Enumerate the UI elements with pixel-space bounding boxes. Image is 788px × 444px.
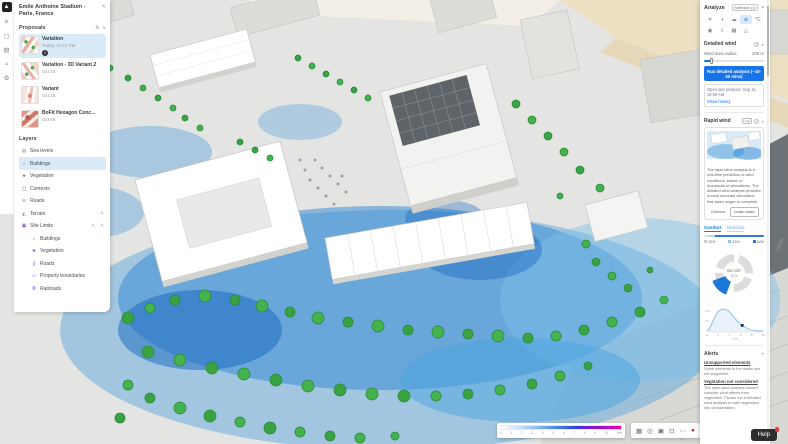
legend-chip: 64% <box>753 240 764 244</box>
x-axis-unit: m/s <box>733 336 738 340</box>
design-icon[interactable]: ▢ <box>3 33 9 40</box>
area-metrics-icon[interactable]: ▦ <box>728 26 740 35</box>
menu-icon[interactable]: ≡ <box>5 19 9 26</box>
proposal-name: Variation - 3D Variant 2 <box>42 62 96 68</box>
learn-more-button[interactable]: Learn more <box>730 207 758 217</box>
layer-label: Terrain <box>30 211 95 217</box>
roads-icon: ≋ <box>21 198 27 204</box>
grid-icon[interactable]: ▦ <box>636 427 642 435</box>
proposal-date: Oct 26 <box>42 117 95 122</box>
alert-body: The rapid wind analysis doesn't consider… <box>704 385 764 410</box>
layer-label: Roads <box>30 198 104 204</box>
terrain-analysis-icon[interactable]: △ <box>740 26 752 35</box>
tick: 6 <box>563 431 565 435</box>
edit-icon[interactable]: ✎ <box>100 223 104 229</box>
tick: 3 <box>531 431 533 435</box>
tick: 2 <box>521 431 523 435</box>
contexts-icon: ◫ <box>21 186 27 192</box>
layer-item-site-limits[interactable]: ▣ Site Limits ✎ ✎ <box>19 220 106 233</box>
property-boundaries-icon: ▱ <box>31 273 37 279</box>
scrollbar-thumb[interactable] <box>767 6 769 76</box>
noise-icon[interactable]: ◉ <box>704 26 716 35</box>
chevron-up-icon[interactable]: ∧ <box>761 351 764 356</box>
proposal-date: Oct 26 <box>42 93 59 98</box>
sun-hours-icon[interactable]: ☀ <box>704 15 716 24</box>
wind-preview-image <box>707 130 761 160</box>
show-history-link[interactable]: Show history <box>707 99 761 104</box>
wind-speed-legend: 0 1 2 3 4 5 6 7 8 9 10 m/s <box>497 423 625 438</box>
selection-chip[interactable]: Selection (1) <box>732 4 758 11</box>
terrain-icon: ◭ <box>21 211 27 217</box>
x-tick: 0 <box>706 333 708 337</box>
y-tick: 5% <box>705 319 709 323</box>
tick: 0 <box>500 431 502 435</box>
tick: 4 <box>542 431 544 435</box>
vegetation-icon: ♣ <box>31 248 37 254</box>
sublayer-item-buildings[interactable]: ⌂ Buildings <box>19 232 106 245</box>
library-icon[interactable]: ▤ <box>3 47 9 54</box>
layer-label: Contexts <box>30 186 104 192</box>
analyze-title: Analyze <box>704 5 730 11</box>
proposal-thumbnail <box>21 86 39 104</box>
dismiss-button[interactable]: Dismiss <box>709 208 727 215</box>
help-icon[interactable]: ? <box>754 42 759 47</box>
sort-icon[interactable]: ⇅ <box>95 25 99 31</box>
chevron-up-icon[interactable]: ∧ <box>761 42 764 47</box>
layer-label: Buildings <box>30 161 104 167</box>
tick: 1 <box>510 431 512 435</box>
divider <box>704 112 764 113</box>
last-analysis-text: Open last analysis: Sep 15, 10:59 AM <box>707 87 761 98</box>
record-icon[interactable]: ● <box>691 427 695 434</box>
railroads-icon: ≣ <box>31 286 37 292</box>
sublayer-item-railroads[interactable]: ≣ Railroads <box>19 282 106 295</box>
tab-comfort[interactable]: Comfort <box>704 225 721 232</box>
y-tick: 10% <box>705 309 711 313</box>
x-tick: 8 <box>751 333 753 337</box>
wind-area-value: 200 m <box>752 51 764 56</box>
camera-icon[interactable]: ▣ <box>658 427 664 435</box>
legend-chip: 33% <box>704 240 715 244</box>
wind-icon[interactable]: ≋ <box>740 15 752 24</box>
help-icon[interactable]: ? <box>754 119 759 124</box>
layer-item-vegetation[interactable]: ♣ Vegetation <box>19 170 106 183</box>
layer-label: Property boundaries <box>40 273 104 279</box>
buildings-icon: ⌂ <box>31 236 37 242</box>
layer-label: Buildings <box>40 236 104 242</box>
wind-area-label: Wind area radius <box>704 51 736 56</box>
close-icon[interactable]: × <box>761 5 764 11</box>
wind-speed-chart[interactable]: 10% 5% 0 2 4 6 8 10 m/s <box>704 300 766 340</box>
run-detailed-analysis-button[interactable]: Run detailed analysis (~10-50 mins) <box>704 66 764 81</box>
comfort-distribution-bar <box>704 235 764 238</box>
rapid-wind-info-card: The rapid wind analysis is a real-time p… <box>704 127 764 220</box>
layer-label: Railroads <box>40 286 104 292</box>
rapid-wind-description: The rapid wind analysis is a real-time p… <box>707 167 761 204</box>
sea-levels-icon: ◍ <box>21 148 27 154</box>
chevron-up-icon[interactable]: ∧ <box>761 119 764 124</box>
buildings-icon: ⌂ <box>21 161 27 167</box>
layer-label: Vegetation <box>40 248 104 254</box>
comfort-legend: 33% 33% 64% <box>704 240 764 244</box>
chevron-down-icon[interactable]: ∨ <box>102 25 106 31</box>
layer-item-buildings[interactable]: ⌂ Buildings <box>19 157 106 170</box>
rapid-wind-header: Rapid wind <box>704 118 742 124</box>
tick: 8 <box>584 431 586 435</box>
thermal-icon[interactable]: ℃ <box>752 15 764 24</box>
tick: 10 <box>605 431 609 435</box>
project-title: Emile Anthoine Stadium - Paris, France <box>19 4 100 19</box>
layer-label: Site Limits <box>30 223 86 229</box>
project-panel: Emile Anthoine Stadium - Paris, France ✎… <box>14 0 110 312</box>
layer-item-roads[interactable]: ≋ Roads <box>19 195 106 208</box>
vegetation-icon: ♣ <box>21 173 27 179</box>
proposal-item[interactable]: Variant Oct 26 <box>19 84 106 106</box>
sublayer-item-property-boundaries[interactable]: ▱ Property boundaries <box>19 270 106 283</box>
proposal-name: Variant <box>42 86 59 92</box>
alert-title[interactable]: Vegetation not considered <box>704 379 764 384</box>
wind-rose-percent: 32% <box>730 274 738 278</box>
analyze-rail-icon[interactable]: ≈ <box>5 61 9 68</box>
layer-label: Sea levels <box>30 148 104 154</box>
proposal-name: BoFit Hexagon Conc... <box>42 110 95 116</box>
x-tick: 4 <box>729 333 731 337</box>
divider <box>704 345 764 346</box>
alert-title[interactable]: Unsupported elements <box>704 360 764 365</box>
help-label: Help <box>758 432 770 438</box>
proposal-item[interactable]: Variation - 3D Variant 2 Oct 23 <box>19 60 106 82</box>
proposal-name: Variation <box>42 36 75 42</box>
proposal-date: Oct 23 <box>42 69 96 74</box>
viewport-toolbar: ▦ ◎ ▣ ⊡ ⋯ ● <box>631 423 700 438</box>
proposals-header: Proposals <box>19 25 92 31</box>
more-icon[interactable]: ⋯ <box>679 427 686 435</box>
settings-icon[interactable]: ⚙ <box>4 75 10 82</box>
edit-icon[interactable]: ✎ <box>91 223 95 229</box>
proposal-thumbnail <box>21 110 39 128</box>
tab-direction[interactable]: Direction <box>727 225 744 232</box>
daylight-icon[interactable]: ◑ <box>716 15 728 24</box>
legend-chip: 33% <box>728 240 739 244</box>
proposal-item[interactable]: Variation Today, 10:21 PM 1 <box>19 34 106 58</box>
x-tick: 10 <box>761 333 765 337</box>
chart-marker[interactable] <box>741 324 744 327</box>
tick: 7 <box>573 431 575 435</box>
site-limits-icon: ▣ <box>21 223 27 229</box>
alert-item[interactable]: Unsupported elements Some elements in th… <box>704 360 764 376</box>
proposal-badge: 1 <box>42 50 48 56</box>
alert-item[interactable]: Vegetation not considered The rapid wind… <box>704 379 764 410</box>
x-tick: 2 <box>717 333 719 337</box>
live-badge: LIVE <box>742 118 753 124</box>
slider-handle[interactable] <box>710 58 713 64</box>
layers-header: Layers <box>19 136 106 142</box>
unit-label: m/s <box>617 431 622 435</box>
microclimate-icon[interactable]: ☁ <box>728 15 740 24</box>
alert-body: Some elements in the model are not suppo… <box>704 366 764 376</box>
expand-icon[interactable]: ⊡ <box>669 427 674 435</box>
proposal-item[interactable]: BoFit Hexagon Conc... Oct 26 <box>19 108 106 130</box>
proposal-thumbnail <box>21 62 39 80</box>
tick: 9 <box>594 431 596 435</box>
detailed-wind-header: Detailed wind <box>704 41 754 47</box>
analyze-panel: Analyze Selection (1) × ☀ ◑ ☁ ≋ ℃ ◉ ☇ ▦ … <box>700 0 770 444</box>
panel-scrollbar[interactable] <box>767 0 769 444</box>
proposal-thumbnail <box>21 36 39 54</box>
bar-segment <box>715 235 764 238</box>
layer-item-terrain[interactable]: ◭ Terrain ✎ <box>19 207 106 220</box>
forma-logo-icon[interactable]: ▲ <box>2 2 12 12</box>
layer-item-sea-levels[interactable]: ◍ Sea levels <box>19 145 106 158</box>
speed-gradient-bar <box>500 425 622 430</box>
app-rail: ▲ ≡ ▢ ▤ ≈ ⚙ <box>0 0 14 214</box>
x-tick: 6 <box>740 333 742 337</box>
notification-dot <box>775 427 780 432</box>
edit-icon[interactable]: ✎ <box>100 211 104 217</box>
last-analysis-box[interactable]: Open last analysis: Sep 15, 10:59 AM Sho… <box>704 84 764 107</box>
sublayer-item-vegetation[interactable]: ♣ Vegetation <box>19 245 106 258</box>
tick: 5 <box>552 431 554 435</box>
roads-icon: ∥ <box>31 261 37 267</box>
speed-ticks: 0 1 2 3 4 5 6 7 8 9 10 m/s <box>500 431 622 435</box>
wind-area-slider[interactable] <box>704 60 764 62</box>
layer-label: Vegetation <box>30 173 104 179</box>
viewport-3d[interactable]: Chirac <box>0 0 788 444</box>
layer-label: Roads <box>40 261 104 267</box>
edit-title-icon[interactable]: ✎ <box>102 4 106 19</box>
sublayer-item-roads[interactable]: ∥ Roads <box>19 257 106 270</box>
wind-rose-direction: SW 225° <box>727 269 742 273</box>
solar-energy-icon[interactable]: ☇ <box>716 26 728 35</box>
proposal-date: Today, 10:21 PM <box>42 43 75 48</box>
alerts-header: Alerts <box>704 351 761 357</box>
wind-rose-chart[interactable]: SW 225° 32% <box>708 247 760 299</box>
eye-icon[interactable]: ◎ <box>647 427 653 435</box>
analysis-icon-grid: ☀ ◑ ☁ ≋ ℃ ◉ ☇ ▦ △ <box>704 15 764 35</box>
help-button[interactable]: Help <box>751 429 777 441</box>
layer-item-contexts[interactable]: ◫ Contexts <box>19 182 106 195</box>
